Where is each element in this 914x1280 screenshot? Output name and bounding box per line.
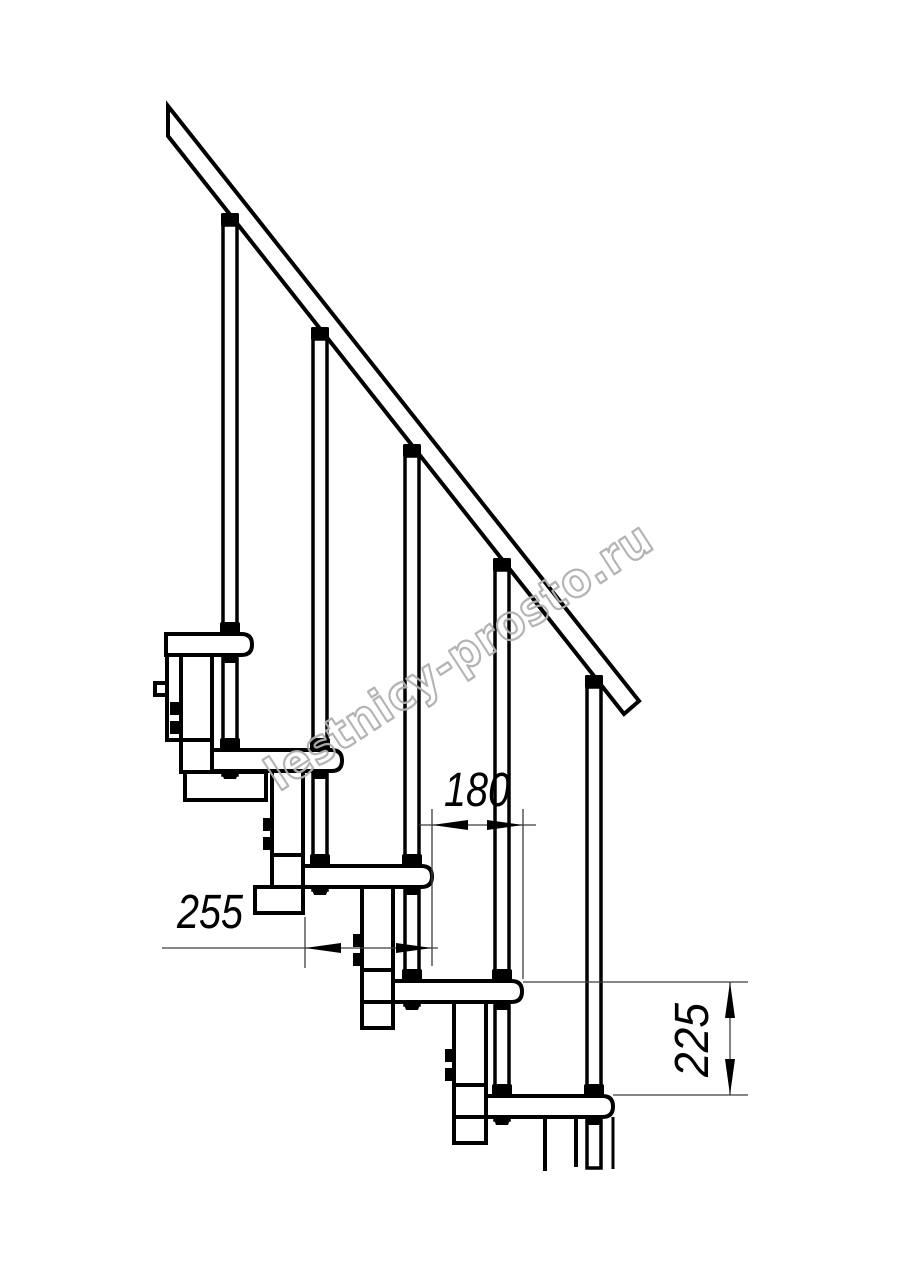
nut-icon bbox=[311, 887, 329, 895]
bolt-icon bbox=[263, 818, 273, 831]
nut-icon bbox=[403, 887, 421, 895]
collar-icon bbox=[402, 969, 422, 981]
technical-drawing-page: 180 255 225 lestnicy-prosto.ru bbox=[0, 0, 914, 1280]
collar-icon bbox=[220, 622, 240, 634]
nut-icon bbox=[221, 771, 239, 779]
collar-icon bbox=[492, 969, 512, 981]
bolt-icon bbox=[170, 702, 181, 715]
dimension-label-225: 225 bbox=[666, 1003, 719, 1078]
support-module-cut bbox=[545, 1117, 613, 1171]
arrowhead-icon bbox=[432, 820, 468, 830]
nut-icon bbox=[493, 1117, 511, 1125]
collar-icon bbox=[492, 1084, 512, 1096]
arrowhead-icon bbox=[305, 943, 341, 953]
dimension-180: 180 bbox=[419, 764, 536, 979]
tread bbox=[166, 634, 252, 655]
staircase-drawing: 180 255 225 lestnicy-prosto.ru bbox=[0, 0, 914, 1280]
dimension-label-255: 255 bbox=[176, 886, 243, 939]
collar-icon bbox=[220, 738, 240, 750]
baluster bbox=[405, 456, 419, 1005]
tread bbox=[303, 866, 432, 887]
bolt-icon bbox=[263, 837, 273, 850]
collar-icon bbox=[402, 854, 422, 866]
support-module bbox=[353, 887, 393, 1028]
nut-icon bbox=[585, 1117, 603, 1125]
dimension-label-180: 180 bbox=[444, 764, 510, 817]
nut-icon bbox=[493, 1002, 511, 1010]
nut-icon bbox=[221, 655, 239, 663]
cap-icon bbox=[403, 444, 421, 457]
mount-tab bbox=[155, 683, 167, 695]
arrowhead-icon bbox=[725, 1059, 735, 1095]
cap-icon bbox=[493, 558, 511, 571]
collar-icon bbox=[584, 1084, 604, 1096]
cap-icon bbox=[221, 213, 239, 226]
bolt-icon bbox=[170, 721, 181, 734]
collar-icon bbox=[310, 854, 330, 866]
support-module bbox=[445, 1002, 486, 1143]
tread bbox=[486, 1096, 613, 1117]
baluster bbox=[223, 225, 237, 775]
tread bbox=[393, 981, 522, 1002]
bolt-icon bbox=[445, 1068, 455, 1081]
baluster bbox=[313, 339, 327, 890]
bolt-icon bbox=[353, 953, 363, 966]
bolt-icon bbox=[353, 934, 363, 947]
support-module bbox=[155, 655, 266, 800]
arrowhead-icon bbox=[725, 982, 735, 1018]
nut-icon bbox=[403, 1002, 421, 1010]
dimension-225: 225 bbox=[523, 982, 748, 1095]
bolt-icon bbox=[445, 1049, 455, 1062]
cap-icon bbox=[585, 675, 603, 688]
cap-icon bbox=[311, 327, 329, 340]
